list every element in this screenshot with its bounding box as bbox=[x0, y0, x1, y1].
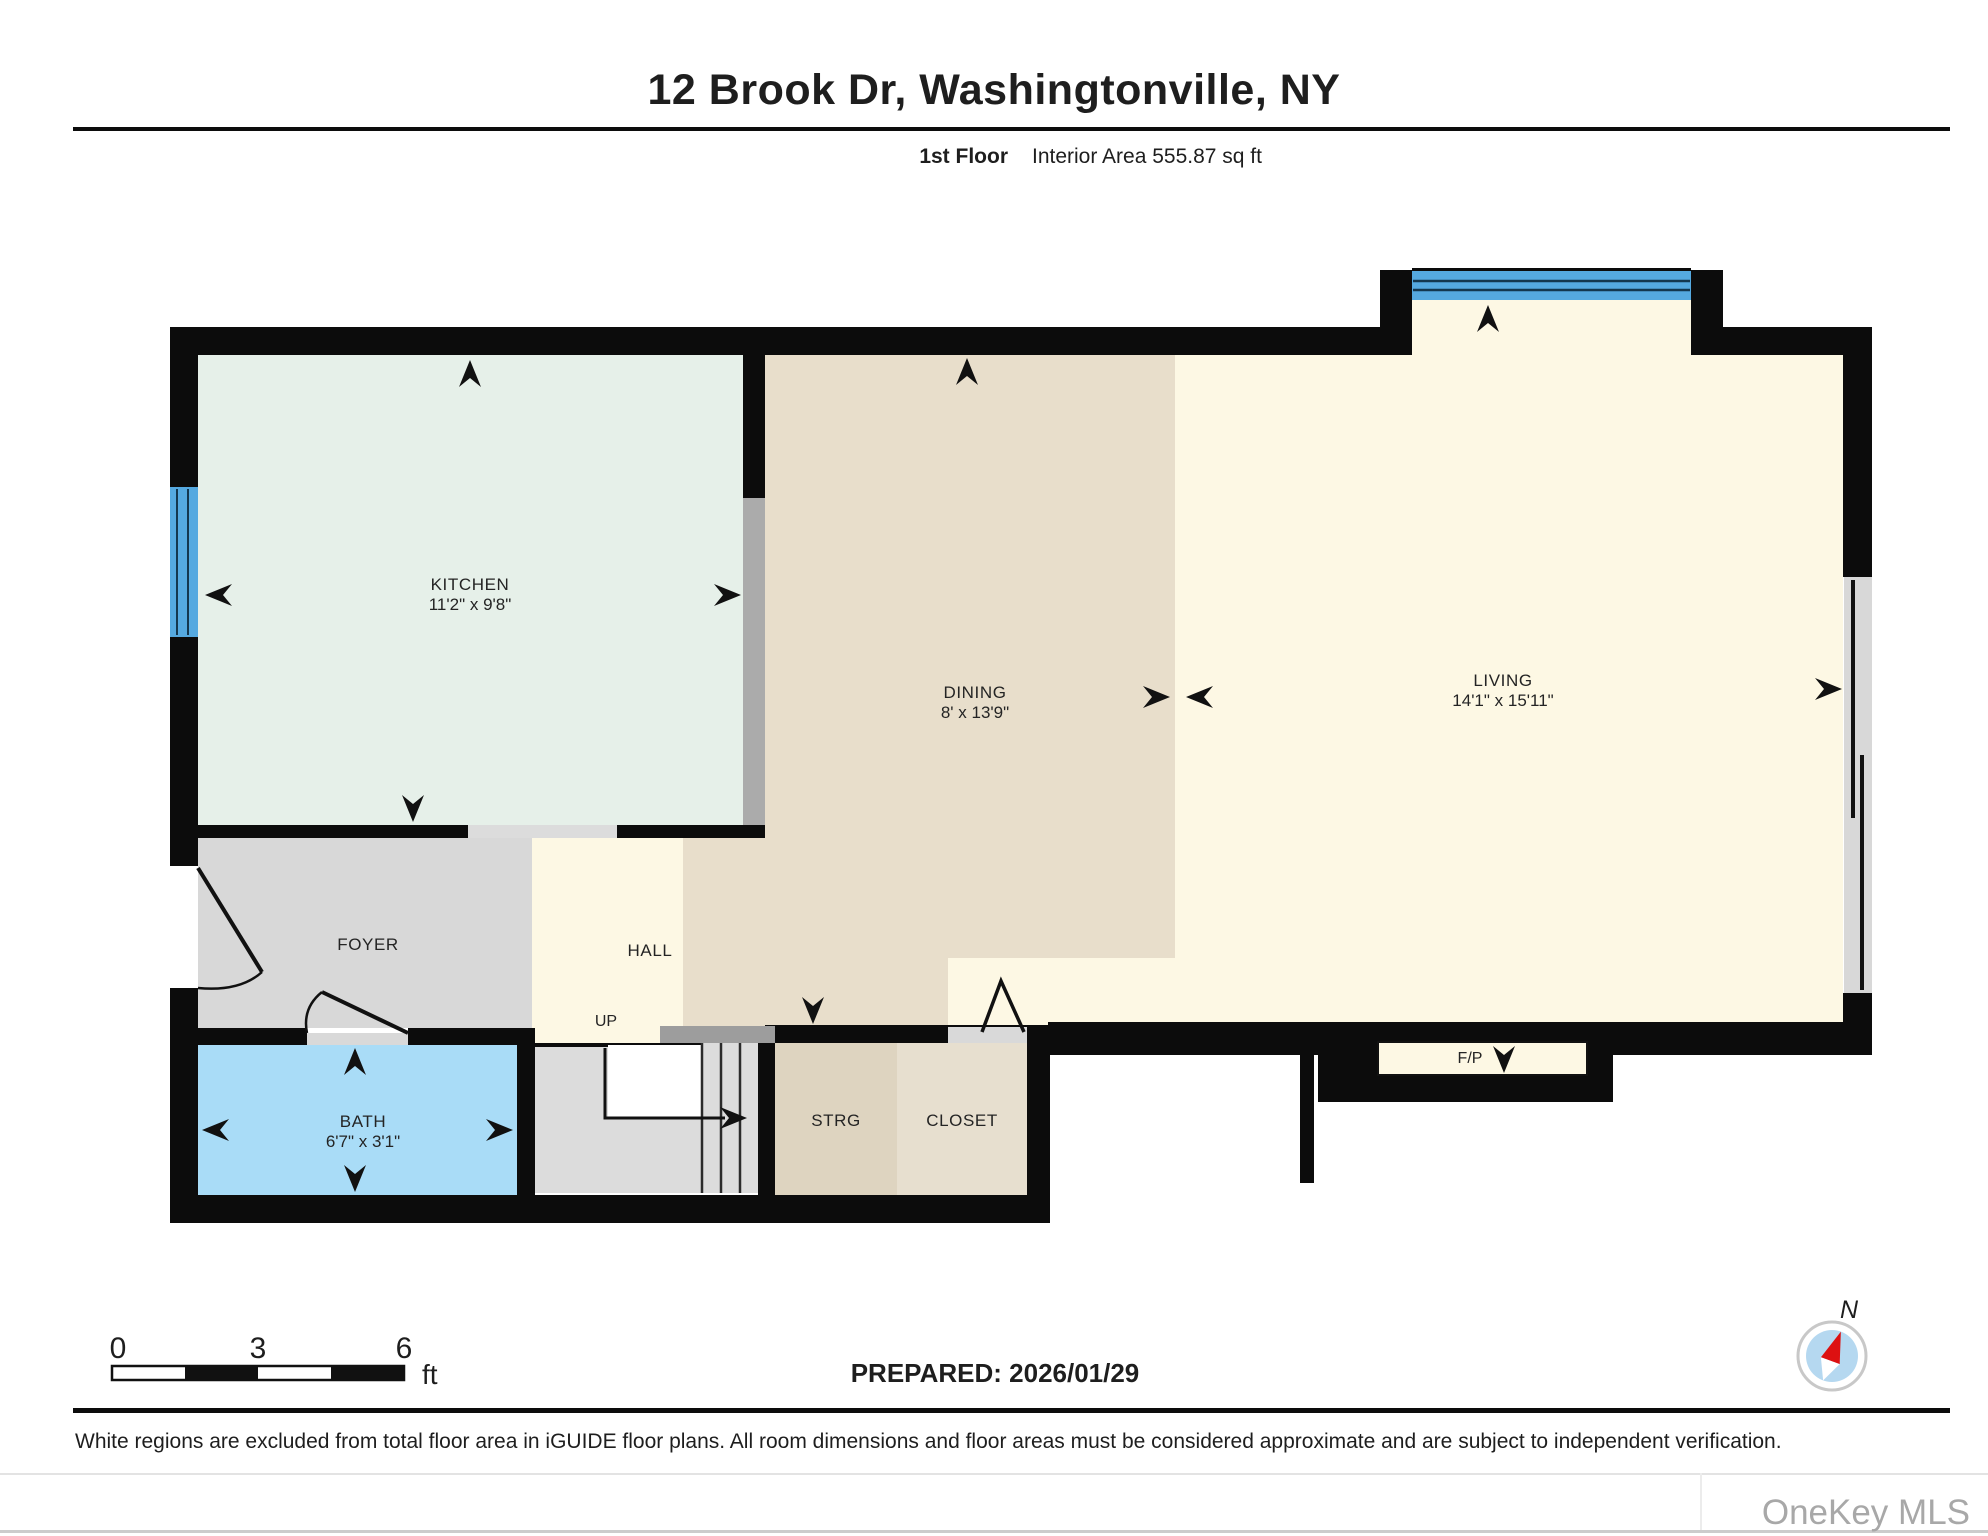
kitchen-label: KITCHEN bbox=[431, 575, 510, 594]
living-label: LIVING bbox=[1473, 671, 1532, 690]
wall-bath-top-left bbox=[198, 1028, 307, 1045]
scale-tick-0: 0 bbox=[110, 1332, 127, 1365]
wall-left-1 bbox=[170, 327, 198, 490]
sliding-door-track bbox=[1844, 577, 1872, 993]
scale-unit-label: ft bbox=[422, 1359, 438, 1390]
storage-label: STRG bbox=[811, 1111, 861, 1130]
stairs-header-bar bbox=[660, 1026, 775, 1043]
header-divider bbox=[73, 127, 1950, 131]
living-window-icon bbox=[1412, 271, 1691, 300]
footer-divider bbox=[73, 1408, 1950, 1413]
scale-bar-segment bbox=[185, 1366, 258, 1380]
closet-label: CLOSET bbox=[926, 1111, 998, 1130]
foyer-room bbox=[198, 838, 532, 1028]
floor-plan-canvas: 12 Brook Dr, Washingtonville, NY 1st Flo… bbox=[0, 0, 1988, 1536]
wall-stairs-right bbox=[758, 1043, 775, 1195]
disclaimer-text: White regions are excluded from total fl… bbox=[75, 1430, 1782, 1453]
wall-kitchen-bottom-right bbox=[617, 825, 765, 838]
dining-room-extension bbox=[683, 838, 765, 1027]
mls-watermark: OneKey MLS bbox=[1762, 1493, 1970, 1532]
interior-area-label: Interior Area 555.87 sq ft bbox=[1032, 145, 1262, 168]
foyer-label: FOYER bbox=[337, 935, 399, 954]
scale-bar-segment bbox=[331, 1366, 404, 1380]
dining-label: DINING bbox=[943, 683, 1006, 702]
prepared-date: PREPARED: 2026/01/29 bbox=[851, 1358, 1140, 1388]
kitchen-dining-half-wall bbox=[743, 498, 765, 825]
wall-bay-right bbox=[1691, 270, 1723, 355]
wall-kitchen-bottom-left bbox=[183, 825, 468, 838]
wall-stub bbox=[1300, 1048, 1314, 1183]
scale-bar: 0 3 6 ft bbox=[110, 1332, 438, 1390]
wall-kitchen-dining-divider bbox=[743, 355, 765, 500]
stairs-excluded-region bbox=[608, 1045, 702, 1118]
scale-tick-3: 3 bbox=[250, 1332, 267, 1365]
kitchen-dims: 11'2" x 9'8" bbox=[429, 595, 512, 614]
bath-label: BATH bbox=[340, 1112, 386, 1131]
bath-dims: 6'7" x 3'1" bbox=[326, 1132, 400, 1151]
bath-door-threshold bbox=[307, 1033, 408, 1045]
fireplace-niche bbox=[1378, 1042, 1587, 1075]
living-room-closet-access bbox=[948, 958, 1175, 1027]
floor-label: 1st Floor bbox=[919, 145, 1008, 168]
wall-top bbox=[170, 327, 1380, 355]
floor-plan-page: { "header": { "title": "12 Brook Dr, Was… bbox=[0, 0, 1988, 1536]
wall-bath-stairs bbox=[517, 1028, 535, 1195]
wall-strip-right bbox=[1027, 1043, 1050, 1198]
watermark-box-border bbox=[1700, 1473, 1702, 1533]
living-dims: 14'1" x 15'11" bbox=[1452, 691, 1553, 710]
living-room-bay bbox=[1412, 298, 1691, 358]
page-bottom-edge bbox=[0, 1530, 1988, 1533]
living-room bbox=[1175, 355, 1843, 1025]
wall-strip-bottom bbox=[170, 1195, 1050, 1223]
dining-dims: 8' x 13'9" bbox=[941, 703, 1009, 722]
hall-label: HALL bbox=[628, 941, 673, 960]
scale-tick-6: 6 bbox=[396, 1332, 413, 1365]
watermark-strip-border bbox=[0, 1473, 1988, 1475]
compass-rose-icon: N bbox=[1798, 1296, 1866, 1390]
wall-left-3 bbox=[170, 988, 198, 1223]
kitchen-window-icon bbox=[170, 487, 198, 637]
compass-north-label: N bbox=[1840, 1296, 1859, 1324]
closet-door-threshold bbox=[948, 1027, 1027, 1043]
wall-right-upper bbox=[1843, 327, 1872, 577]
kitchen-hall-threshold bbox=[468, 825, 617, 838]
wall-bath-top-right bbox=[408, 1028, 535, 1045]
wall-bay-left bbox=[1380, 270, 1412, 355]
page-title: 12 Brook Dr, Washingtonville, NY bbox=[648, 66, 1341, 114]
stairs-up-label: UP bbox=[595, 1013, 617, 1030]
fireplace-label: F/P bbox=[1458, 1050, 1483, 1067]
